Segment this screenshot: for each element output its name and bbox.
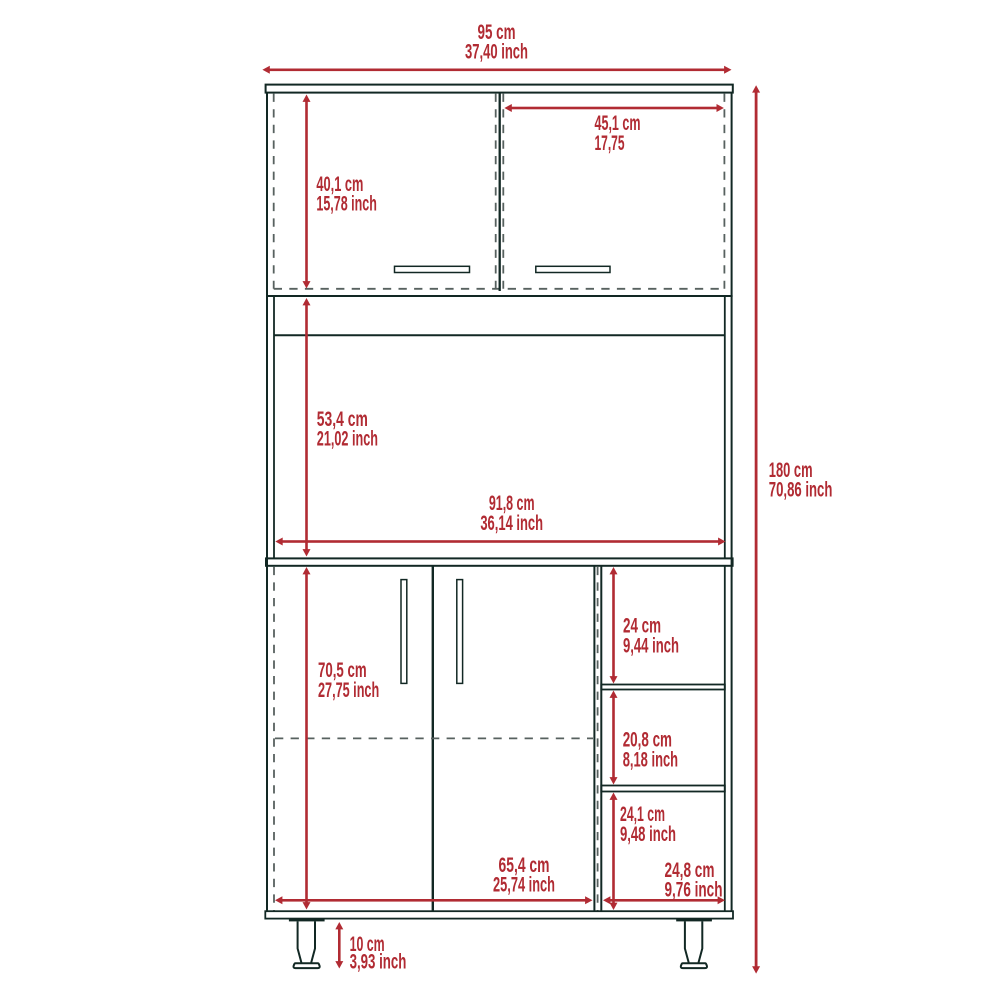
svg-text:9,48 inch: 9,48 inch	[620, 823, 676, 846]
svg-text:8,18 inch: 8,18 inch	[623, 749, 678, 772]
svg-text:37,40 inch: 37,40 inch	[465, 41, 528, 64]
svg-text:9,76 inch: 9,76 inch	[665, 879, 723, 902]
svg-text:3,93 inch: 3,93 inch	[350, 950, 407, 973]
svg-text:15,78 inch: 15,78 inch	[316, 193, 377, 216]
svg-text:25,74 inch: 25,74 inch	[493, 874, 555, 897]
svg-text:17,75: 17,75	[595, 132, 625, 155]
svg-text:27,75 inch: 27,75 inch	[318, 679, 379, 702]
svg-text:9,44 inch: 9,44 inch	[623, 634, 679, 657]
svg-text:70,86 inch: 70,86 inch	[769, 479, 833, 502]
svg-text:21,02 inch: 21,02 inch	[317, 428, 378, 451]
svg-text:36,14 inch: 36,14 inch	[480, 512, 543, 535]
